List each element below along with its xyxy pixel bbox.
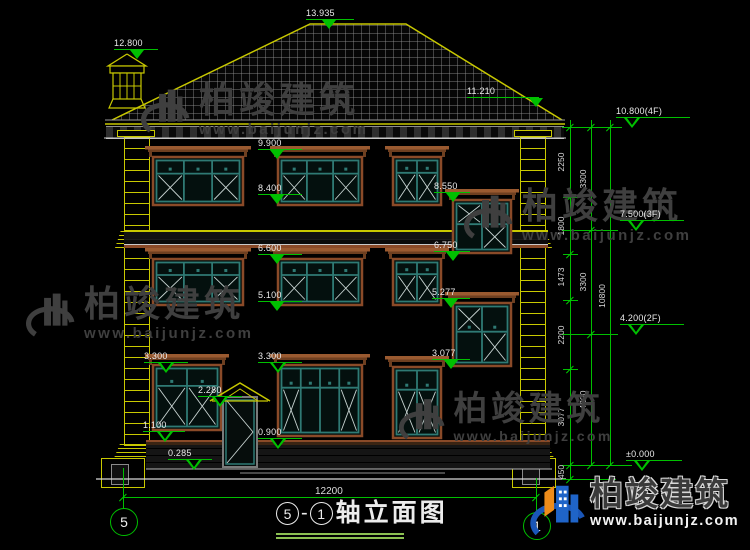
level-marker-w3_top: 6.600: [258, 243, 302, 255]
brand-logo: 柏竣建筑 www.baijunjz.com: [528, 477, 739, 539]
brand-logo-icon: [528, 477, 586, 539]
level-marker-floor2: 4.200(2F): [620, 313, 684, 325]
drawing-title: 5 - 1 轴立面图: [276, 501, 448, 526]
level-marker-stair2_bottom: 3.077: [432, 348, 470, 360]
level-marker-w3_bottom: 5.100: [258, 290, 302, 302]
title-underline-2: [276, 537, 404, 539]
level-marker-ground: ±0.000: [626, 449, 682, 461]
elevation-drawing: 13.93512.80011.2109.9008.4008.5506.7506.…: [0, 0, 750, 550]
left-pedestal-panel: [111, 464, 129, 485]
title-axis-bubble-1: 1: [310, 502, 333, 525]
title-axis-bubble-5: 5: [276, 502, 299, 525]
level-marker-w1_top_mid: 3.300: [258, 351, 302, 363]
title-separator: -: [301, 502, 308, 525]
watermark-top: 柏竣建筑 www.baijunjz.com: [140, 82, 368, 138]
watermark-logo-icon: [463, 188, 515, 243]
window: [384, 248, 450, 312]
window: [384, 146, 450, 212]
level-marker-w4_top: 9.900: [258, 138, 302, 150]
watermark-bottom: 柏竣建筑 www.baijunjz.com: [398, 392, 613, 445]
level-marker-stair2_top: 5.277: [432, 287, 470, 299]
level-marker-floor4: 10.800(4F): [616, 106, 690, 118]
level-marker-stair1_top: 8.550: [434, 181, 470, 193]
axis-bubble-5: 5: [110, 508, 138, 536]
level-marker-w1_bottom_left: 1.100: [143, 420, 185, 432]
level-marker-porch: 0.285: [168, 448, 212, 460]
level-marker-stair1_bottom: 6.750: [434, 240, 470, 252]
level-marker-w1_top_left: 3.300: [144, 351, 188, 363]
level-marker-floor3: 7.500(3F): [620, 209, 684, 221]
level-marker-w4_bottom: 8.400: [258, 183, 302, 195]
overall-width-dim-text: 12200: [315, 486, 343, 497]
window: [144, 146, 252, 212]
watermark-logo-icon: [398, 392, 447, 444]
title-text: 轴立面图: [336, 501, 448, 526]
axis-line-5: [123, 468, 124, 510]
overall-width-dim-line: [123, 497, 536, 498]
level-marker-ridge: 13.935: [306, 8, 354, 20]
watermark-logo-icon: [140, 82, 192, 137]
watermark-logo-icon: [25, 286, 77, 341]
level-marker-eave: 11.210: [467, 86, 539, 98]
level-marker-w1_bottom_mid: 0.900: [258, 427, 302, 439]
right-pilaster-top-cap: [514, 130, 552, 137]
watermark-left: 柏竣建筑 www.baijunjz.com: [25, 286, 253, 342]
title-underline-1: [276, 533, 404, 535]
level-marker-chimney: 12.800: [114, 38, 158, 50]
window: [269, 248, 371, 312]
window: [269, 146, 371, 212]
level-marker-door_top: 2.280: [198, 385, 242, 397]
